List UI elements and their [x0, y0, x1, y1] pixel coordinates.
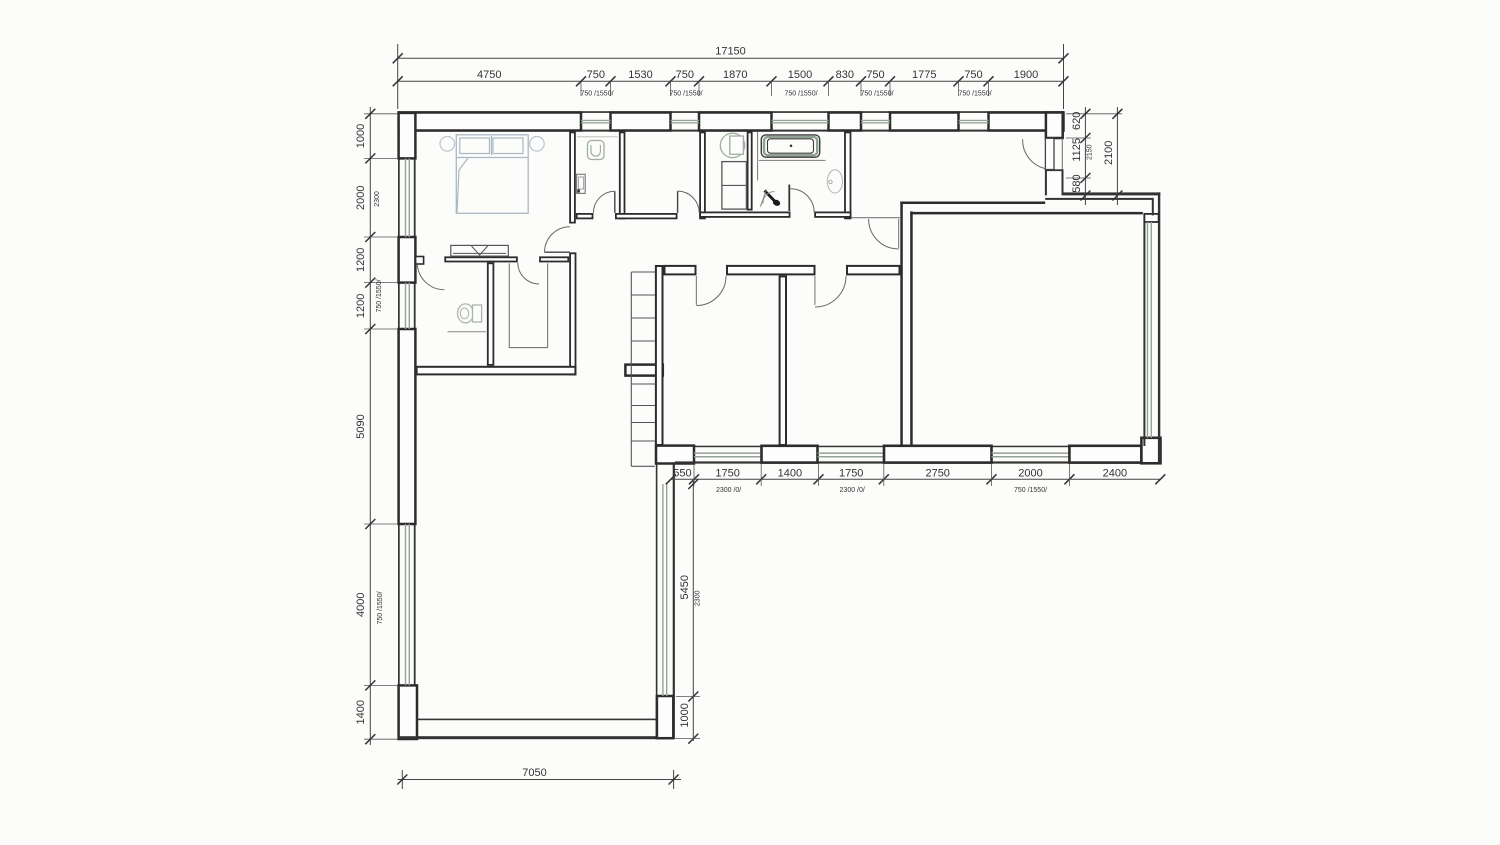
- svg-text:4750: 4750: [477, 69, 501, 81]
- svg-text:750 /1550/: 750 /1550/: [669, 91, 702, 98]
- svg-text:750 /1550/: 750 /1550/: [860, 91, 893, 98]
- svg-text:1000: 1000: [355, 124, 367, 148]
- svg-text:750: 750: [587, 69, 605, 81]
- svg-text:1200: 1200: [355, 294, 367, 318]
- svg-text:2300 /0/: 2300 /0/: [840, 487, 865, 494]
- svg-text:1400: 1400: [355, 700, 367, 724]
- svg-text:2150: 2150: [1087, 144, 1094, 160]
- svg-text:2300 /0/: 2300 /0/: [716, 487, 741, 494]
- svg-text:2750: 2750: [925, 467, 949, 479]
- svg-text:1200: 1200: [355, 248, 367, 272]
- svg-text:1750: 1750: [715, 467, 739, 479]
- svg-text:17150: 17150: [715, 46, 746, 58]
- svg-text:1400: 1400: [778, 467, 802, 479]
- svg-text:2100: 2100: [1103, 141, 1115, 165]
- svg-text:4000: 4000: [355, 592, 367, 616]
- svg-text:5090: 5090: [355, 414, 367, 438]
- svg-text:1125: 1125: [1071, 138, 1083, 162]
- svg-text:550: 550: [673, 467, 691, 479]
- svg-text:1900: 1900: [1014, 69, 1038, 81]
- svg-text:750: 750: [676, 69, 694, 81]
- svg-text:2000: 2000: [355, 185, 367, 209]
- svg-text:580: 580: [1071, 174, 1083, 192]
- svg-text:750 /1550/: 750 /1550/: [784, 91, 817, 98]
- svg-text:750: 750: [964, 69, 982, 81]
- svg-text:1000: 1000: [679, 703, 691, 727]
- svg-text:750 /1550/: 750 /1550/: [376, 279, 383, 312]
- svg-text:1750: 1750: [839, 467, 863, 479]
- svg-text:5450: 5450: [679, 575, 691, 599]
- svg-text:2400: 2400: [1103, 467, 1127, 479]
- svg-text:620: 620: [1071, 112, 1083, 130]
- svg-text:1500: 1500: [788, 69, 812, 81]
- svg-text:2300: 2300: [695, 590, 702, 606]
- svg-text:2300: 2300: [374, 191, 381, 207]
- svg-text:750: 750: [866, 69, 884, 81]
- svg-text:830: 830: [836, 69, 854, 81]
- svg-text:1775: 1775: [912, 69, 936, 81]
- svg-text:750 /1550/: 750 /1550/: [377, 591, 384, 624]
- svg-text:7050: 7050: [522, 767, 546, 779]
- svg-text:750 /1550/: 750 /1550/: [580, 91, 613, 98]
- svg-text:750 /1550/: 750 /1550/: [958, 91, 991, 98]
- svg-text:1870: 1870: [723, 69, 747, 81]
- svg-text:1530: 1530: [628, 69, 652, 81]
- svg-text:2000: 2000: [1018, 467, 1042, 479]
- svg-text:750 /1550/: 750 /1550/: [1014, 487, 1047, 494]
